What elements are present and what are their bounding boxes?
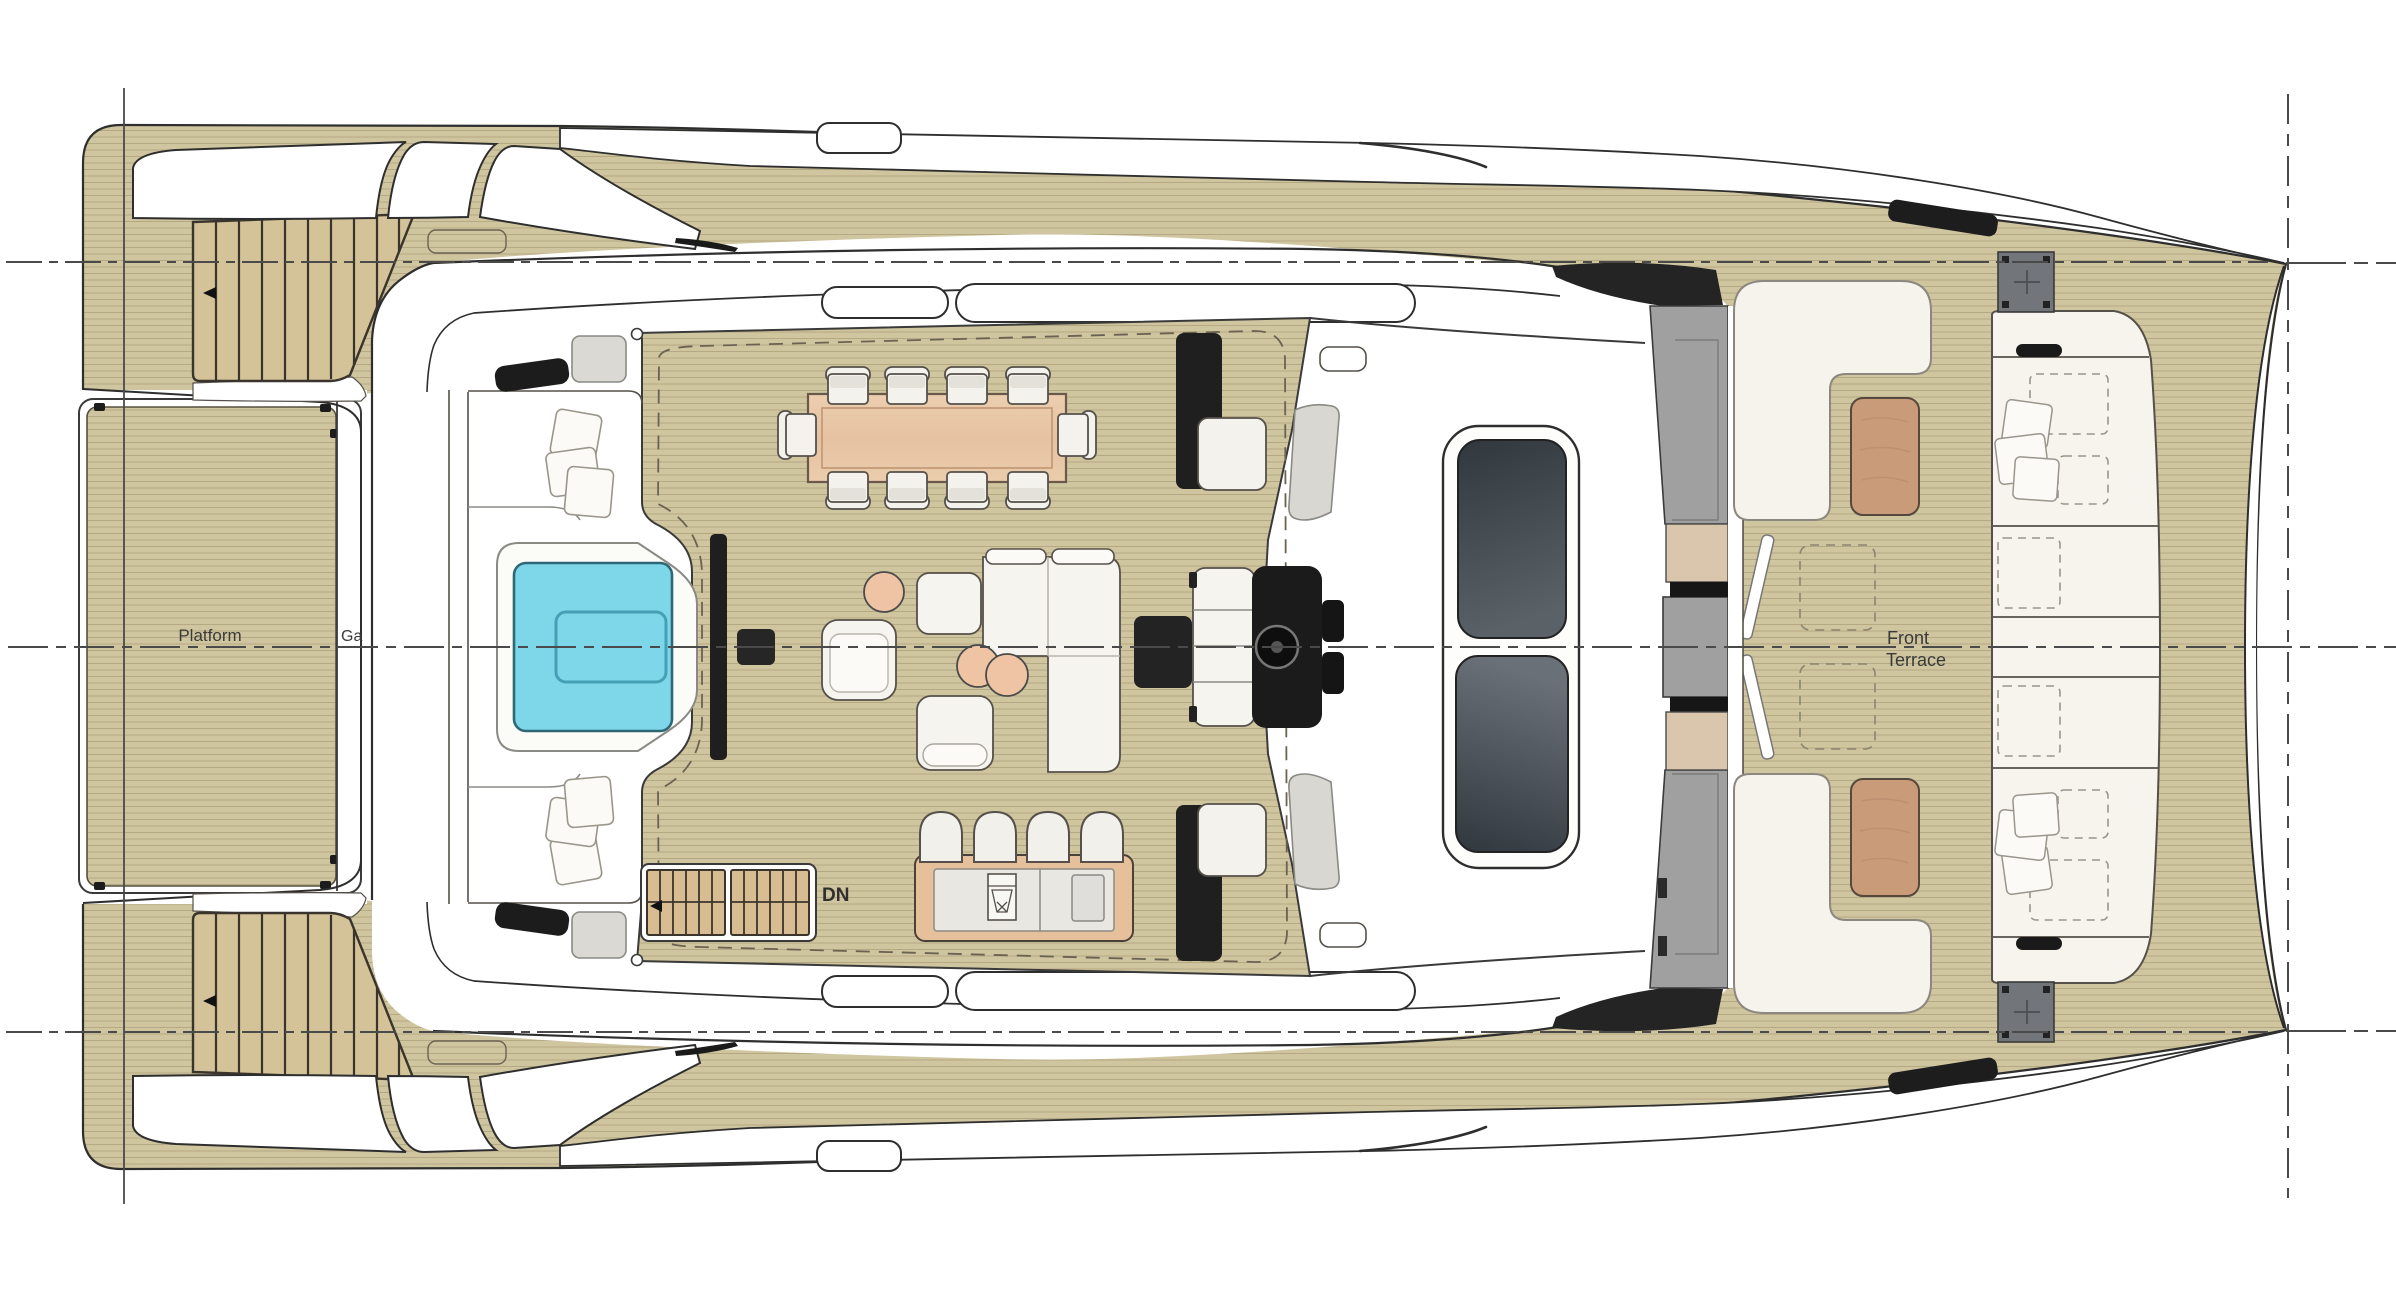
svg-text:Front: Front [1887, 628, 1929, 648]
svg-text:DN: DN [822, 885, 849, 906]
svg-text:Terrace: Terrace [1886, 650, 1946, 670]
svg-text:Platform: Platform [178, 626, 241, 645]
svg-text:Ga: Ga [341, 628, 362, 645]
